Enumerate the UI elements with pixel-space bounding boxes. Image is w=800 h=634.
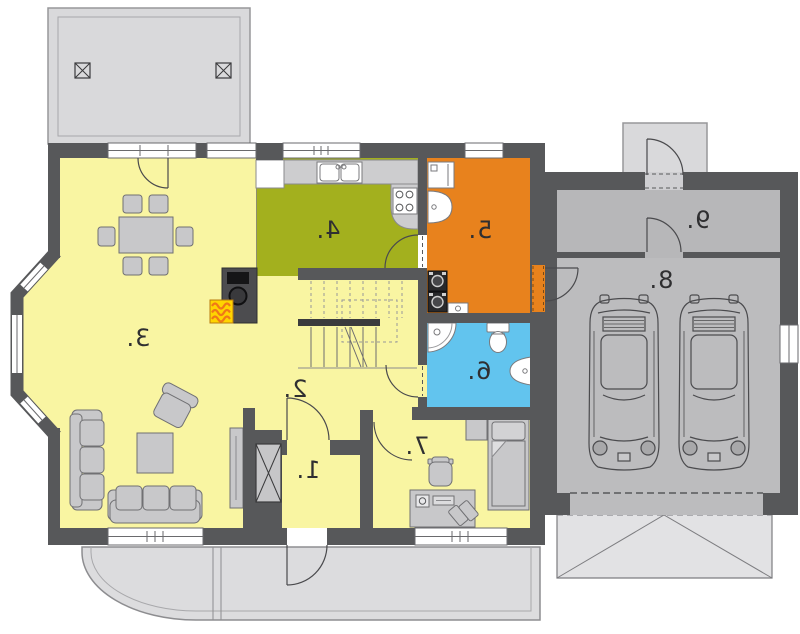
tv-cabinet [230, 428, 243, 508]
washer-dryer [428, 271, 447, 312]
flame-icon [210, 300, 233, 323]
terrace-door-window [108, 143, 196, 158]
fridge [256, 160, 284, 188]
garage-window [780, 325, 798, 363]
boiler [428, 162, 454, 188]
stove [393, 188, 417, 214]
room-label-bedroom: 7. [395, 431, 439, 461]
coffee-table [137, 433, 173, 473]
front-terrace [82, 547, 540, 620]
sofa-horizontal [108, 486, 202, 523]
nightstand [466, 418, 487, 440]
chimney-shaft [256, 444, 281, 502]
room-label-garage: 8. [639, 265, 683, 295]
garage-floors [557, 172, 780, 515]
floor-plan-drawing [0, 0, 800, 634]
room-label-bathroom: 6. [457, 356, 501, 386]
sofa-vertical [70, 410, 104, 510]
floor-plan-canvas: 1. 2. 3. 4. 5. 6. 7. 8. 9. [0, 0, 800, 634]
bed [488, 418, 529, 510]
bedroom-window [415, 528, 507, 545]
room-label-living-room: 3. [116, 323, 160, 353]
rear-porch [623, 123, 707, 175]
living-top-window [207, 143, 256, 158]
upper-terrace [48, 8, 250, 144]
room-label-hall: 2. [273, 374, 317, 404]
driveway [557, 515, 772, 578]
room-label-kitchen: 4. [306, 215, 350, 245]
room-label-storage: 9. [676, 205, 720, 235]
kitchen-sink [317, 162, 362, 183]
living-bottom-window [108, 528, 203, 545]
kitchen-window [283, 143, 360, 158]
utility-window [465, 143, 503, 158]
terrace-column-icon [216, 63, 231, 78]
room-label-utility: 5. [458, 215, 502, 245]
floor-drain [448, 303, 468, 314]
desk-equipment [416, 495, 454, 507]
storage-floor [557, 190, 780, 252]
terrace-column-icon [75, 63, 90, 78]
chair [428, 457, 453, 486]
stair-rail [298, 319, 380, 326]
room-label-vestibule: 1. [286, 455, 330, 485]
